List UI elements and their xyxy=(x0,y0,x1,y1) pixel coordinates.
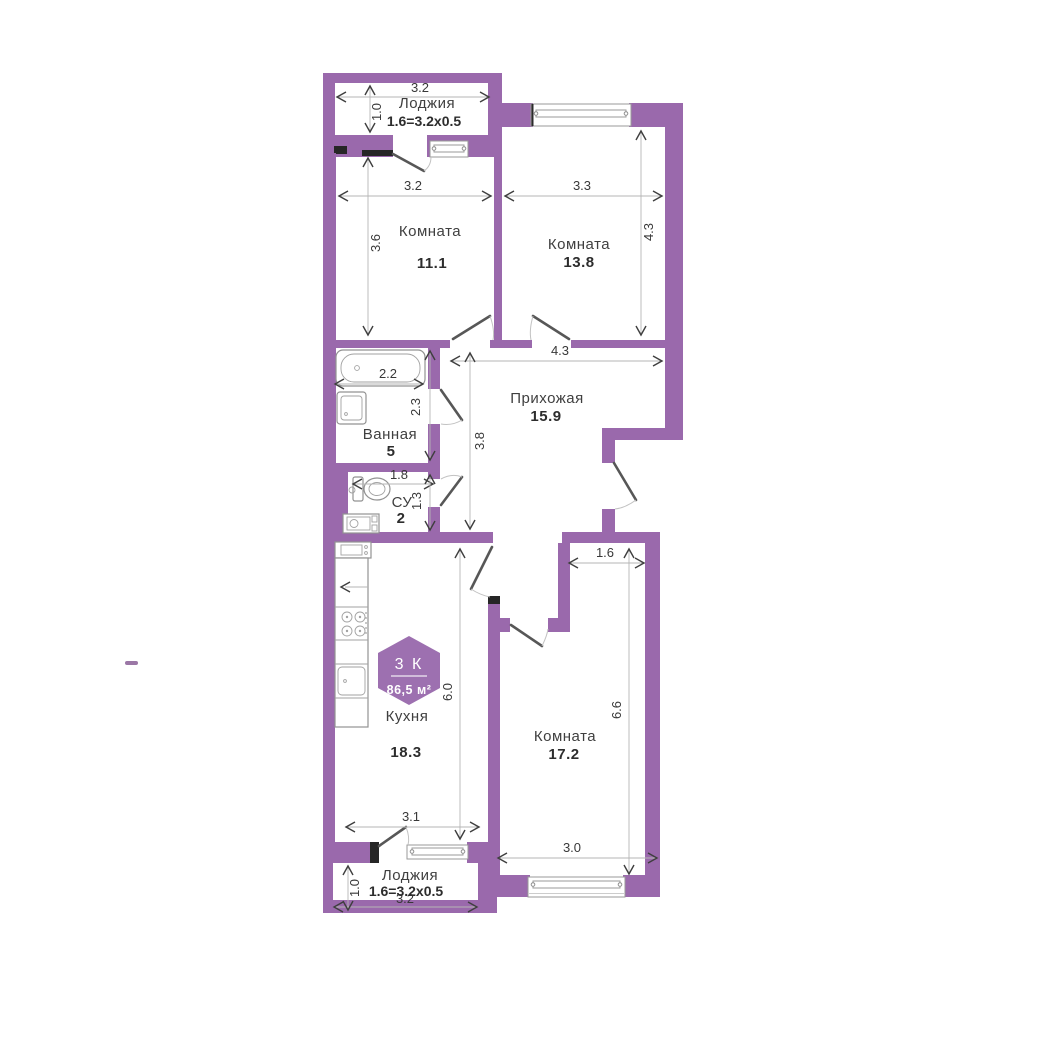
wall-stub xyxy=(334,146,347,154)
room-11-name: Комната xyxy=(399,223,461,240)
room-labels: Лоджия 1.6=3.2x0.5 Комната 11.1 Комната … xyxy=(363,95,610,899)
toilet xyxy=(349,477,390,501)
loggia-bottom-name: Лоджия xyxy=(382,867,438,884)
floor-plan-page: 3.2 1.0 3.2 3.6 3.3 4.3 4.3 3.8 2.2 2.3 xyxy=(0,0,1042,1039)
door-room-13-8 xyxy=(530,316,569,340)
wc-name: СУ xyxy=(392,494,413,511)
room-label-room-13-8: Комната 13.8 xyxy=(548,236,610,271)
dim-room-13-8-depth: 4.3 xyxy=(641,223,656,241)
balcony-door-jamb xyxy=(370,842,379,863)
room-13-8-area: 13.8 xyxy=(563,254,594,271)
room-label-room-11: Комната 11.1 xyxy=(399,223,461,272)
room-label-loggia-bottom: Лоджия 1.6=3.2x0.5 xyxy=(369,867,444,899)
dim-bathroom-width: 2.2 xyxy=(379,366,397,381)
room-label-bathroom: Ванная 5 xyxy=(363,426,417,460)
hallway-name: Прихожая xyxy=(510,390,584,407)
room-11-area: 11.1 xyxy=(417,255,447,272)
loggia-bottom-area: 1.6=3.2x0.5 xyxy=(369,883,444,899)
room-17-2-name: Комната xyxy=(534,728,596,745)
room-17-2-area: 17.2 xyxy=(548,746,579,763)
bathroom-sink xyxy=(337,392,366,424)
room-label-wc: СУ 2 xyxy=(392,494,413,527)
door-wc xyxy=(441,475,462,505)
dim-loggia-bottom-depth: 1.0 xyxy=(347,879,362,897)
stray-dash xyxy=(125,661,138,665)
window-room-13-8 xyxy=(531,104,631,126)
window-kitchen-loggia xyxy=(407,845,468,859)
window-loggia-top xyxy=(430,141,468,157)
kitchen-name: Кухня xyxy=(386,708,429,725)
kitchen-counter xyxy=(335,558,368,727)
hallway-area: 15.9 xyxy=(530,408,561,425)
door-room-17-2 xyxy=(511,625,548,646)
dim-hallway-width: 4.3 xyxy=(551,343,569,358)
kitchen-appliance xyxy=(335,542,371,558)
balcony-door-jamb xyxy=(362,150,393,156)
room-13-8-name: Комната xyxy=(548,236,610,253)
window-room-17-2 xyxy=(528,877,625,897)
door-entrance xyxy=(614,463,636,509)
bathroom-name: Ванная xyxy=(363,426,417,443)
dim-loggia-top-width: 3.2 xyxy=(411,80,429,95)
door-room-11 xyxy=(453,316,494,340)
door-balcony-bottom xyxy=(379,827,409,846)
dim-bathroom-depth: 2.3 xyxy=(408,398,423,416)
badge-total-area: 86,5 м² xyxy=(387,683,432,697)
room-label-kitchen: Кухня 18.3 xyxy=(386,708,429,761)
room-label-hallway: Прихожая 15.9 xyxy=(510,390,584,425)
room-label-room-17-2: Комната 17.2 xyxy=(534,728,596,763)
loggia-top-name: Лоджия xyxy=(399,95,455,112)
dim-hallway-depth: 3.8 xyxy=(472,432,487,450)
area-badge: 3 К 86,5 м² xyxy=(378,636,440,705)
washing-machine xyxy=(343,514,379,533)
door-balcony-top xyxy=(393,154,431,171)
dim-kitchen-depth: 6.0 xyxy=(440,683,455,701)
dim-room-11-depth: 3.6 xyxy=(368,234,383,252)
door-kitchen xyxy=(471,547,492,597)
dim-wc-width: 1.8 xyxy=(390,467,408,482)
dim-room-13-8-width: 3.3 xyxy=(573,178,591,193)
dim-room-11-width: 3.2 xyxy=(404,178,422,193)
wc-area: 2 xyxy=(397,510,406,527)
floor-plan-canvas: 3.2 1.0 3.2 3.6 3.3 4.3 4.3 3.8 2.2 2.3 xyxy=(0,0,1042,1039)
dim-room-17-2-depth: 6.6 xyxy=(609,701,624,719)
room-label-loggia-top: Лоджия 1.6=3.2x0.5 xyxy=(387,95,462,129)
badge-rooms-count: 3 К xyxy=(395,656,424,673)
door-bathroom xyxy=(441,390,462,425)
dim-niche-width: 1.6 xyxy=(596,545,614,560)
dim-room-17-2-width: 3.0 xyxy=(563,840,581,855)
dim-kitchen-width: 3.1 xyxy=(402,809,420,824)
kitchen-area: 18.3 xyxy=(390,744,421,761)
dim-loggia-top-depth: 1.0 xyxy=(369,103,384,121)
loggia-top-area: 1.6=3.2x0.5 xyxy=(387,113,462,129)
bathroom-area: 5 xyxy=(387,443,396,460)
